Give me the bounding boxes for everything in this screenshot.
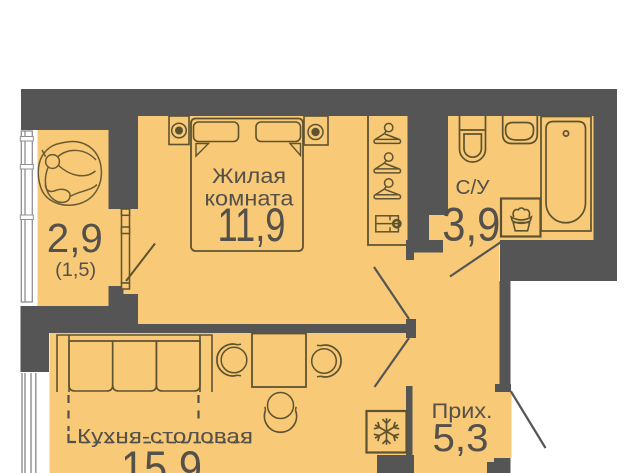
svg-text:3,9: 3,9 bbox=[442, 198, 500, 251]
svg-text:(1,5): (1,5) bbox=[55, 259, 96, 281]
svg-text:С/У: С/У bbox=[456, 177, 490, 199]
svg-text:15,9: 15,9 bbox=[121, 441, 202, 473]
svg-text:5,3: 5,3 bbox=[433, 417, 489, 460]
svg-text:Жилая: Жилая bbox=[212, 164, 286, 188]
svg-text:2,9: 2,9 bbox=[47, 215, 103, 261]
svg-text:11,9: 11,9 bbox=[218, 198, 286, 251]
